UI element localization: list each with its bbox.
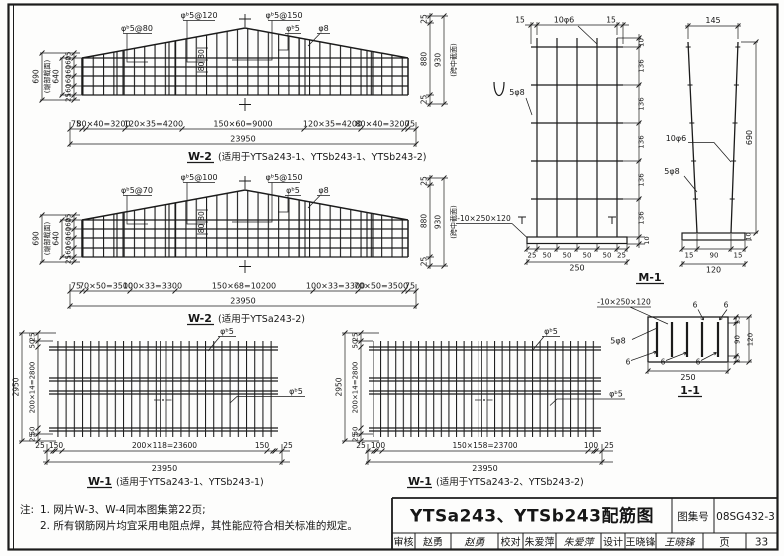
- section-bars: [657, 322, 718, 357]
- dim: 25: [528, 252, 537, 260]
- drawing-caption-note: (适用于YTSa243-1、YTSb243-1、YTSb243-2): [218, 152, 427, 163]
- dim: 10: [643, 236, 651, 244]
- leader-lines: [456, 26, 597, 238]
- drawing-caption: W-2: [188, 150, 212, 163]
- dim: 145: [705, 16, 720, 25]
- rebar-label: φᵇ5@70: [121, 186, 153, 195]
- dim-total: 23950: [230, 135, 255, 144]
- dim: 25: [65, 93, 73, 102]
- dim: 15: [734, 355, 742, 364]
- weld-dim: 6: [693, 301, 698, 310]
- plate-label: -10×250×120: [457, 214, 511, 223]
- dim: 25: [420, 14, 429, 24]
- dim: 200×14=2800: [29, 362, 37, 414]
- dim: 80×40=3200: [76, 120, 130, 129]
- s11-drawing: -10×250×120 5φ8 6 6 6 6 6 250 15 90 15 1…: [597, 298, 755, 398]
- rebar-label: φᵇ5: [286, 24, 300, 33]
- weld-tee-icons: [518, 217, 616, 224]
- rebar-label: φ8: [318, 24, 328, 33]
- title-block: YTSa243、YTSb243配筋图 图集号 08SG432-3 审核 赵勇 赵…: [392, 498, 777, 550]
- drawing-caption-note: (适用于YTSa243-1、YTSb243-1): [116, 477, 264, 488]
- break-dot: [162, 399, 164, 401]
- dim-total: 2950: [12, 377, 21, 396]
- dim: 50: [29, 340, 37, 349]
- dim: 10: [745, 232, 753, 240]
- dim: 136: [638, 211, 646, 225]
- dim: 150: [49, 441, 64, 450]
- drawing-caption: 1-1: [680, 384, 700, 397]
- rebar-label: 5φ8: [664, 167, 679, 176]
- dim: 136: [638, 135, 646, 149]
- drawing-caption: W-2: [188, 312, 212, 325]
- dim-total: 23950: [152, 464, 177, 473]
- dim: 930: [434, 215, 443, 230]
- w2a-drawing: φᵇ5@80 φᵇ5@120 φᵇ5@150 φᵇ5 φ8 80 80 25 1…: [32, 11, 459, 163]
- drawing-caption-note: (适用于YTSa243-2、YTSb243-2): [436, 477, 584, 488]
- rebar-label: 5φ8: [509, 88, 524, 97]
- section-note: (跨中截面): [449, 43, 458, 77]
- dim: 15: [734, 252, 743, 260]
- page-label: 页: [719, 537, 730, 549]
- notes-line-1: 1. 网片W-3、W-4同本图集第22页;: [40, 503, 206, 516]
- dim: 80: [197, 49, 206, 59]
- dim: 880: [420, 214, 429, 229]
- sheet-title: YTSa243、YTSb243配筋图: [409, 506, 654, 527]
- w1b-drawing: φᵇ5 φᵇ5 25 50 200×14=2800 50 25 2950 25 …: [335, 327, 626, 488]
- dim: 100×33=3300: [123, 282, 182, 291]
- dim: 690: [32, 69, 41, 84]
- dim: 880: [420, 52, 429, 67]
- rebar-label: φ8: [318, 186, 328, 195]
- rebar-label: 5φ8: [610, 337, 625, 346]
- m1-drawing: 15 15 10φ6 5φ8 -10×250×120 10 136 136 13…: [456, 16, 759, 285]
- dim: 80: [197, 62, 206, 72]
- side-base-plate: [682, 233, 745, 240]
- side-legs: [688, 42, 738, 233]
- dim: 50: [603, 252, 612, 260]
- notes: 注: 1. 网片W-3、W-4同本图集第22页; 2. 所有钢筋网片均宜采用电阻…: [20, 503, 358, 532]
- designer-signature: 王晓锋: [665, 537, 696, 549]
- dim: 90: [734, 335, 742, 344]
- dim-ticks: [525, 23, 642, 265]
- dim: 25: [283, 441, 293, 450]
- rebar-label: φᵇ5@100: [180, 173, 217, 182]
- rebar-label: φᵇ5@150: [265, 173, 302, 182]
- rebar-label: 10φ6: [666, 134, 687, 143]
- mesh-vertical-bars: [537, 38, 617, 237]
- rebar-label: φᵇ5@80: [121, 24, 153, 33]
- weld-dim: 6: [724, 301, 729, 310]
- dim: 80: [197, 224, 206, 234]
- checker-signature: 朱爱萍: [564, 537, 596, 549]
- side-leader-lines: [684, 143, 731, 193]
- rebar-label: φᵇ5@150: [265, 11, 302, 20]
- atlas-no-label: 图集号: [677, 510, 709, 523]
- dim: 136: [638, 59, 646, 73]
- dim: 150×68=10200: [212, 282, 276, 291]
- notes-line-2: 2. 所有钢筋网片均宜采用电阻点焊，其性能应符合相关标准的规定。: [40, 519, 358, 532]
- dim: 25: [604, 441, 614, 450]
- reviewer-name: 赵勇: [423, 536, 443, 549]
- w2b-drawing: φᵇ5@70 φᵇ5@100 φᵇ5@150 φᵇ5 φ8 80 80 25 1…: [32, 173, 459, 325]
- dim: 150: [255, 441, 270, 450]
- section-note: (端部截面): [43, 60, 52, 94]
- dim: 75: [405, 282, 415, 291]
- weld-dim: 6: [626, 358, 631, 367]
- dim: 25: [65, 255, 73, 264]
- notes-prefix: 注:: [20, 503, 34, 516]
- reviewer-signature: 赵勇: [465, 537, 486, 549]
- dim: 136: [638, 97, 646, 111]
- dim: 25: [617, 252, 626, 260]
- rebar-label: 10φ6: [554, 16, 575, 25]
- atlas-no-value: 08SG432-3: [716, 511, 775, 523]
- rebar-label: φᵇ5: [544, 327, 558, 336]
- break-dot: [483, 399, 485, 401]
- mesh-vertical-bars: [491, 341, 597, 437]
- dim-total: 120: [747, 333, 755, 346]
- dim-total: 250: [569, 264, 584, 273]
- dim: 50: [583, 252, 592, 260]
- dim: 120×35=4200: [303, 120, 362, 129]
- dim: 640: [52, 69, 61, 84]
- dim: 25: [35, 441, 45, 450]
- dim: 25: [356, 441, 366, 450]
- weld-dim: 6: [696, 358, 701, 367]
- rebar-label: φᵇ5: [286, 186, 300, 195]
- dim: 25: [420, 176, 429, 186]
- rebar-label: φᵇ5@120: [180, 11, 217, 20]
- base-plate: [527, 237, 627, 244]
- rebar-label: φᵇ5: [609, 390, 623, 399]
- dim: 136: [638, 173, 646, 187]
- dim: 15: [515, 16, 525, 25]
- dim: 150×158=23700: [452, 441, 517, 450]
- page-no: 33: [755, 537, 768, 549]
- dim: 15: [606, 16, 616, 25]
- dim: 80×40=3200: [355, 120, 409, 129]
- drawing-caption: W-1: [88, 475, 112, 488]
- truss-vertical-bars: [82, 190, 408, 257]
- dim: 640: [52, 231, 61, 246]
- dim: 690: [745, 130, 754, 145]
- dim: 70×50=3500: [354, 282, 408, 291]
- dim-lines: [525, 22, 645, 265]
- rebar-label: φᵇ5: [220, 327, 234, 336]
- mesh-vertical-bars: [53, 341, 157, 437]
- drawing-caption: W-1: [408, 475, 432, 488]
- dim: 150×60=9000: [213, 120, 272, 129]
- dim: 15: [734, 316, 742, 325]
- rebar-label: φᵇ5: [289, 387, 303, 396]
- dim: 25: [420, 257, 429, 267]
- dim: 15: [685, 252, 694, 260]
- dim: 90: [710, 252, 719, 260]
- mesh-vertical-bars: [373, 341, 479, 437]
- dim: 80: [197, 211, 206, 221]
- dim: 25: [420, 95, 429, 105]
- weld-dim: 6: [661, 358, 666, 367]
- checker-name: 朱爱萍: [525, 536, 555, 549]
- dim: 75: [405, 120, 415, 129]
- dim: 50: [543, 252, 552, 260]
- dim: 930: [434, 53, 443, 68]
- truss-vertical-bars: [82, 28, 408, 95]
- section-note: (端部截面): [43, 222, 52, 256]
- w1a-drawing: φᵇ5 φᵇ5 25 50 200×14=2800 50 25 2950 25 …: [12, 327, 306, 488]
- dim: 10: [638, 38, 646, 47]
- dim-total: 2950: [335, 377, 344, 396]
- drawing-sheet: φᵇ5@80 φᵇ5@120 φᵇ5@150 φᵇ5 φ8 80 80 25 1…: [0, 0, 784, 556]
- review-label: 审核: [394, 536, 414, 549]
- dim: 200×14=2800: [352, 362, 360, 414]
- check-label: 校对: [501, 536, 521, 549]
- plate-label: -10×250×120: [597, 298, 651, 307]
- bent-bar-icon: [494, 82, 504, 96]
- dim-total: 250: [680, 373, 695, 382]
- design-label: 设计: [603, 536, 623, 549]
- dim: 120×35=4200: [124, 120, 183, 129]
- dim: 690: [32, 231, 41, 246]
- dim: 50: [563, 252, 572, 260]
- mesh-vertical-bars: [169, 341, 274, 437]
- dim: 200×118=23600: [132, 441, 197, 450]
- dim-total: 23950: [472, 464, 497, 473]
- drawing-caption-note: (适用于YTSa243-2): [218, 314, 305, 325]
- dim: 100: [584, 441, 599, 450]
- dim-total: 23950: [230, 297, 255, 306]
- designer-name: 王晓锋: [626, 536, 656, 549]
- dim: 100: [371, 441, 386, 450]
- drawing-caption: M-1: [638, 271, 661, 284]
- dim: 50: [352, 340, 360, 349]
- dim-total: 120: [706, 266, 721, 275]
- sheet-canvas: φᵇ5@80 φᵇ5@120 φᵇ5@150 φᵇ5 φ8 80 80 25 1…: [0, 0, 784, 556]
